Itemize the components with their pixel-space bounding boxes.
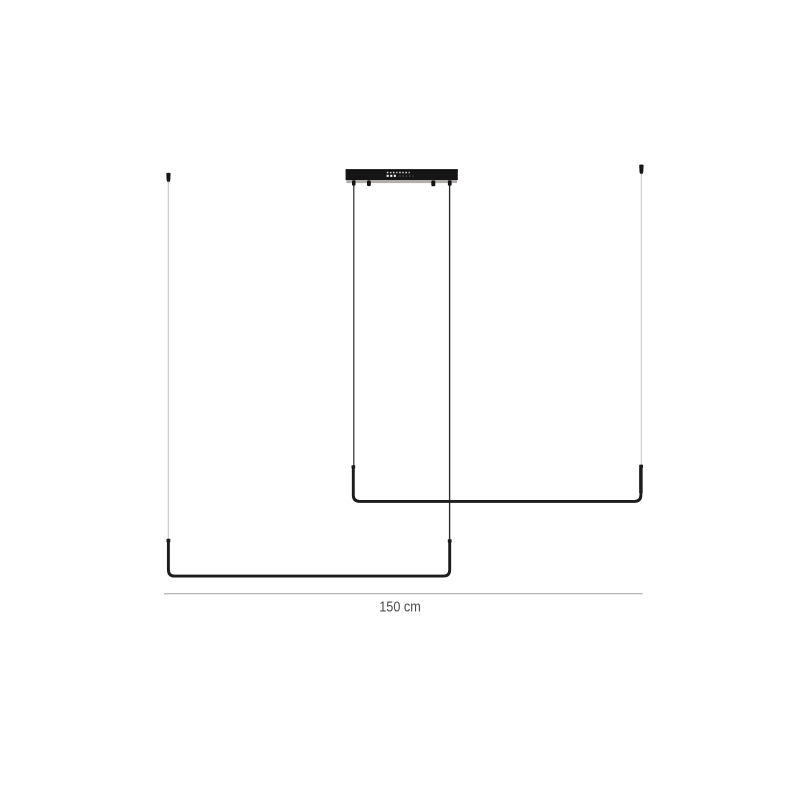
svg-text:150 cm: 150 cm [379, 600, 421, 616]
